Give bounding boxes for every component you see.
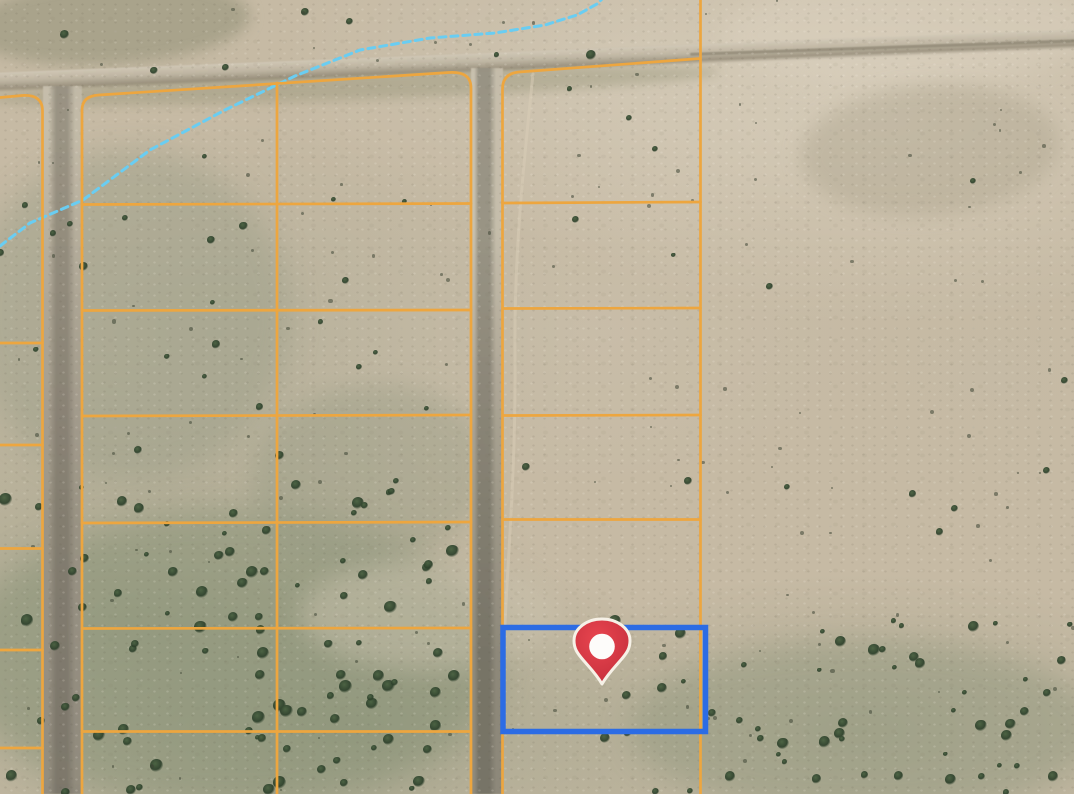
parcel-boundary-line	[82, 204, 471, 205]
parcel-boundary-line	[503, 202, 701, 203]
parcel-boundary-line	[503, 308, 701, 309]
faint-trail	[505, 74, 533, 624]
parcel-boundary-line	[503, 415, 701, 416]
pin-center-dot	[589, 634, 615, 660]
map-overlay-svg	[0, 0, 1074, 794]
location-pin[interactable]	[574, 619, 630, 684]
parcel-boundary-line	[82, 310, 471, 311]
parcel-boundary-line	[82, 415, 471, 416]
map-canvas[interactable]	[0, 0, 1074, 794]
stream-dashed-line	[0, 0, 603, 246]
parcel-boundary-line	[82, 628, 471, 629]
parcel-boundary-line	[82, 522, 471, 523]
